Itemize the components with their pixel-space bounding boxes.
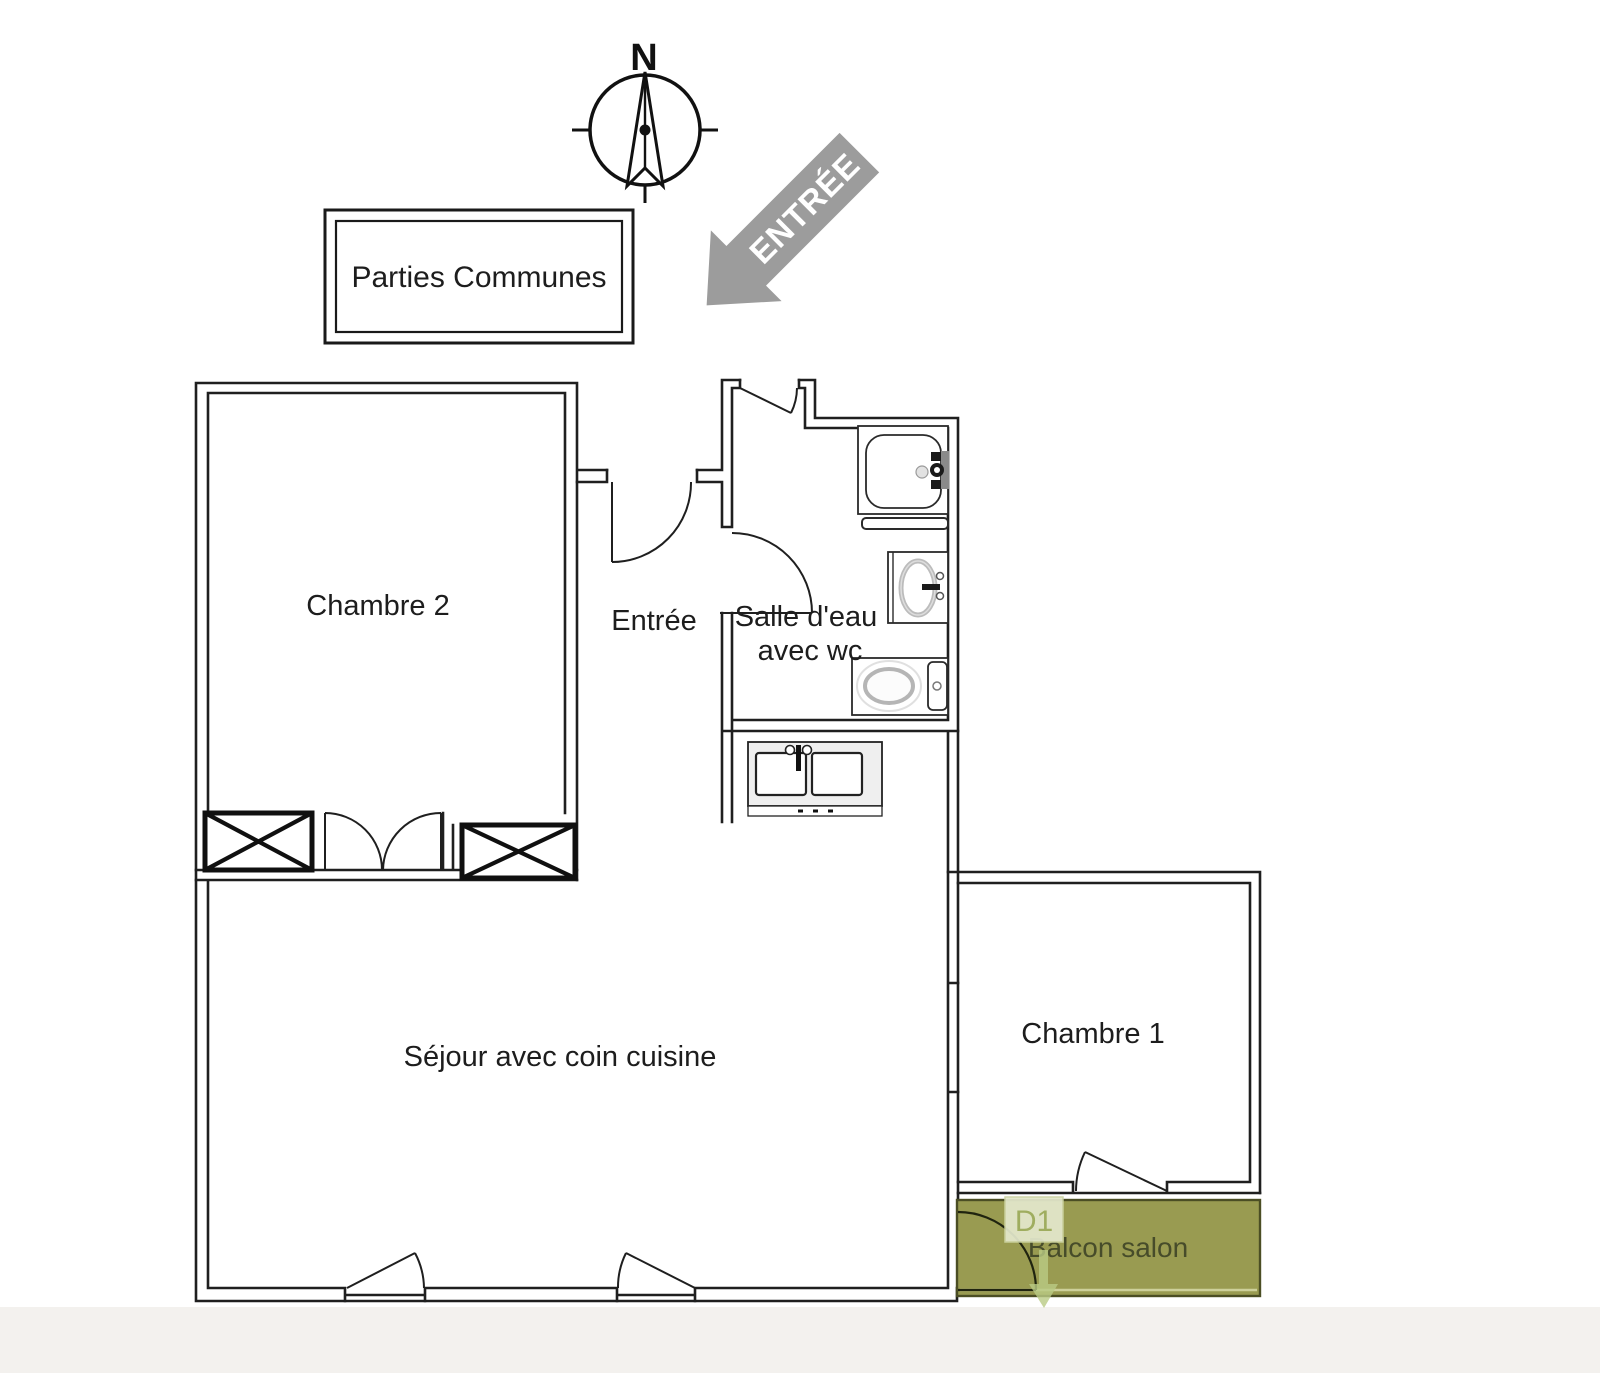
- balcony: Balcon salon D1: [957, 1197, 1260, 1308]
- chambre1-label: Chambre 1: [1021, 1018, 1164, 1050]
- salle-deau-label-line2: avec wc: [758, 635, 863, 667]
- bottom-band: [0, 1307, 1600, 1373]
- shower-icon: [858, 426, 949, 514]
- toilet-icon: [852, 658, 948, 715]
- door-tag-d1-label: D1: [1015, 1205, 1053, 1238]
- floor-plan-page: N ENTRÉE Parties Communes: [0, 0, 1600, 1373]
- chambre2-label: Chambre 2: [306, 590, 449, 622]
- shower-halfwall: [862, 518, 948, 529]
- salle-deau-label-line1: Salle d'eau: [735, 601, 878, 633]
- floor-plan: N ENTRÉE Parties Communes: [0, 0, 1600, 1373]
- sejour-label: Séjour avec coin cuisine: [404, 1041, 717, 1073]
- parties-communes-box: Parties Communes: [325, 210, 633, 343]
- parties-communes-label: Parties Communes: [351, 261, 606, 294]
- kitchen-sink-icon: [748, 742, 882, 816]
- washbasin-icon: [888, 552, 948, 623]
- compass-north-label: N: [630, 37, 657, 79]
- entree-label: Entrée: [611, 605, 696, 637]
- compass-center-dot: [640, 125, 651, 136]
